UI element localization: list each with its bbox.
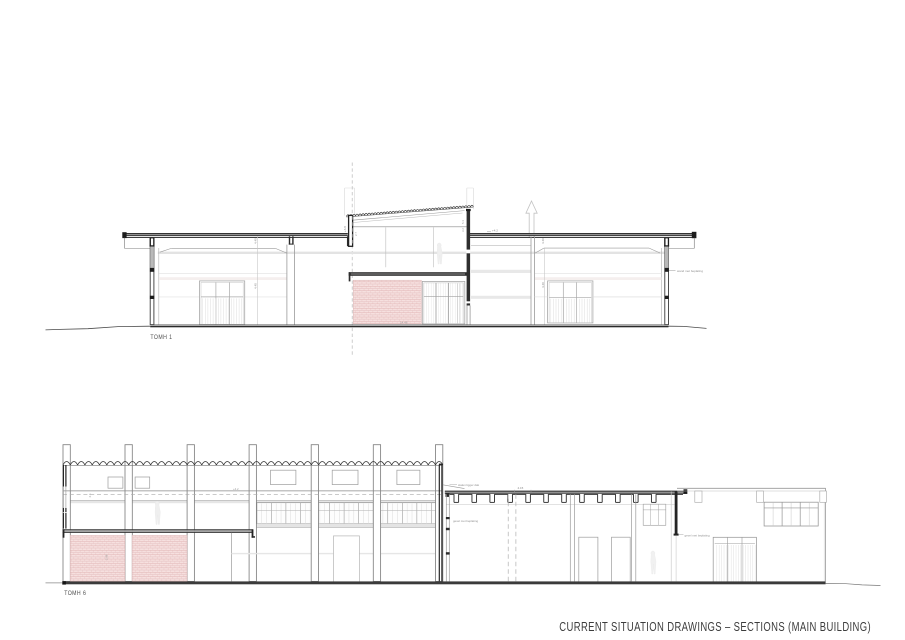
svg-text:4.40: 4.40 — [254, 283, 258, 289]
svg-text:wand met beplating: wand met beplating — [677, 269, 703, 273]
svg-text:+6.8: +6.8 — [343, 226, 347, 232]
svg-text:4.40: 4.40 — [541, 238, 545, 244]
svg-text:4.6: 4.6 — [88, 493, 92, 497]
svg-text:+4.2: +4.2 — [492, 228, 498, 232]
svg-text:4.40: 4.40 — [541, 282, 545, 288]
svg-text:14.46: 14.46 — [400, 320, 408, 324]
svg-text:5.3: 5.3 — [461, 220, 465, 224]
svg-text:TOMH 1: TOMH 1 — [150, 335, 172, 341]
svg-text:4.40: 4.40 — [254, 238, 258, 244]
svg-text:2.88: 2.88 — [105, 554, 109, 560]
svg-text:stalen ligger dak: stalen ligger dak — [458, 483, 480, 487]
svg-text:CURRENT SITUATION DRAWINGS – S: CURRENT SITUATION DRAWINGS – SECTIONS (M… — [559, 621, 871, 635]
svg-text:gevel met beplating: gevel met beplating — [453, 519, 478, 523]
svg-text:3.2: 3.2 — [461, 228, 465, 232]
svg-text:TOMH 6: TOMH 6 — [64, 591, 86, 597]
svg-text:2.7: 2.7 — [354, 232, 358, 236]
svg-text:gevel met beplating: gevel met beplating — [685, 533, 710, 537]
svg-text:4.15: 4.15 — [518, 486, 524, 490]
